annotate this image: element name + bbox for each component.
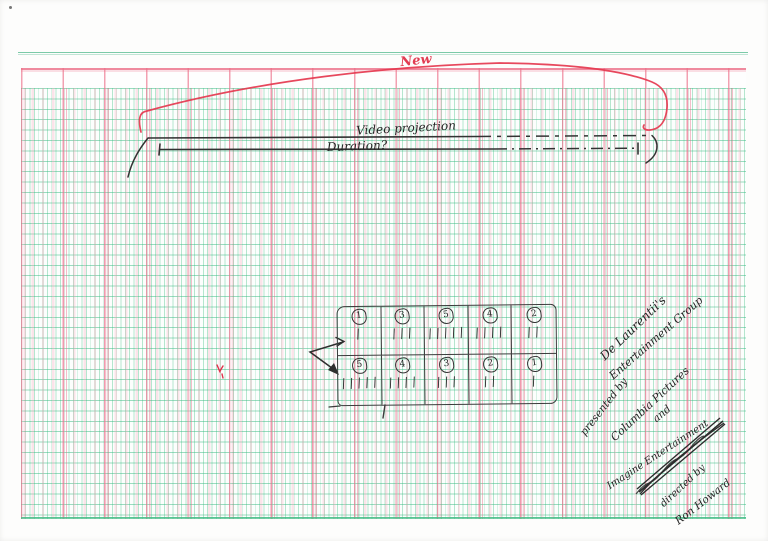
red-check-mark — [217, 365, 223, 378]
tally-cell: 5 ||||| — [338, 356, 382, 405]
bracket-left-paren — [128, 138, 148, 177]
scanned-ledger-page: New Video projection Duration? 1 | 3 |||… — [0, 0, 768, 541]
tally-marks: | — [355, 326, 363, 342]
circled-number: 5 — [438, 307, 455, 325]
tally-marks: || — [526, 324, 542, 340]
tally-marks: ||| — [435, 373, 459, 389]
duration-line-dashdot — [495, 148, 638, 149]
tally-marks: ||||| — [426, 324, 466, 341]
circled-number: 1 — [526, 355, 543, 373]
tally-cell: 3 ||| — [425, 355, 469, 404]
bracket-right-paren — [646, 136, 657, 164]
circled-number: 4 — [395, 357, 412, 375]
tally-cell: 4 |||| — [382, 355, 426, 404]
tally-marks: ||||| — [340, 374, 380, 391]
tally-marks: |||| — [387, 374, 419, 391]
tally-table: 1 | 3 ||| 5 ||||| 4 |||| 2 || 5 ||||| 4 … — [336, 304, 557, 406]
tally-marks: | — [530, 373, 538, 389]
bracket-top-line-dashed — [478, 136, 652, 137]
circled-number: 3 — [438, 356, 455, 374]
tally-cell: 2 || — [469, 354, 513, 403]
tally-cell: 1 | — [337, 307, 381, 356]
duration-label: Duration? — [327, 138, 388, 154]
circled-number: 1 — [350, 308, 367, 326]
tally-marks: || — [482, 373, 498, 389]
circled-number: 2 — [525, 306, 542, 324]
tally-cell: 2 || — [512, 305, 556, 354]
circled-number: 2 — [482, 356, 499, 374]
tally-cell: 4 |||| — [468, 305, 512, 354]
bracket-top-line-solid — [148, 137, 478, 139]
tally-cell: 5 ||||| — [425, 306, 469, 355]
tally-marks: ||| — [391, 325, 415, 341]
tally-cell: 1 | — [512, 354, 556, 403]
circled-number: 3 — [394, 308, 411, 326]
tally-marks: |||| — [474, 324, 506, 341]
circled-number: 5 — [351, 357, 368, 375]
tally-cell: 3 ||| — [381, 306, 425, 355]
table-bottom-stub — [383, 405, 385, 418]
duration-left-tick — [159, 144, 160, 155]
table-bottom-left-stroke — [329, 406, 340, 407]
circled-number: 4 — [481, 307, 498, 325]
